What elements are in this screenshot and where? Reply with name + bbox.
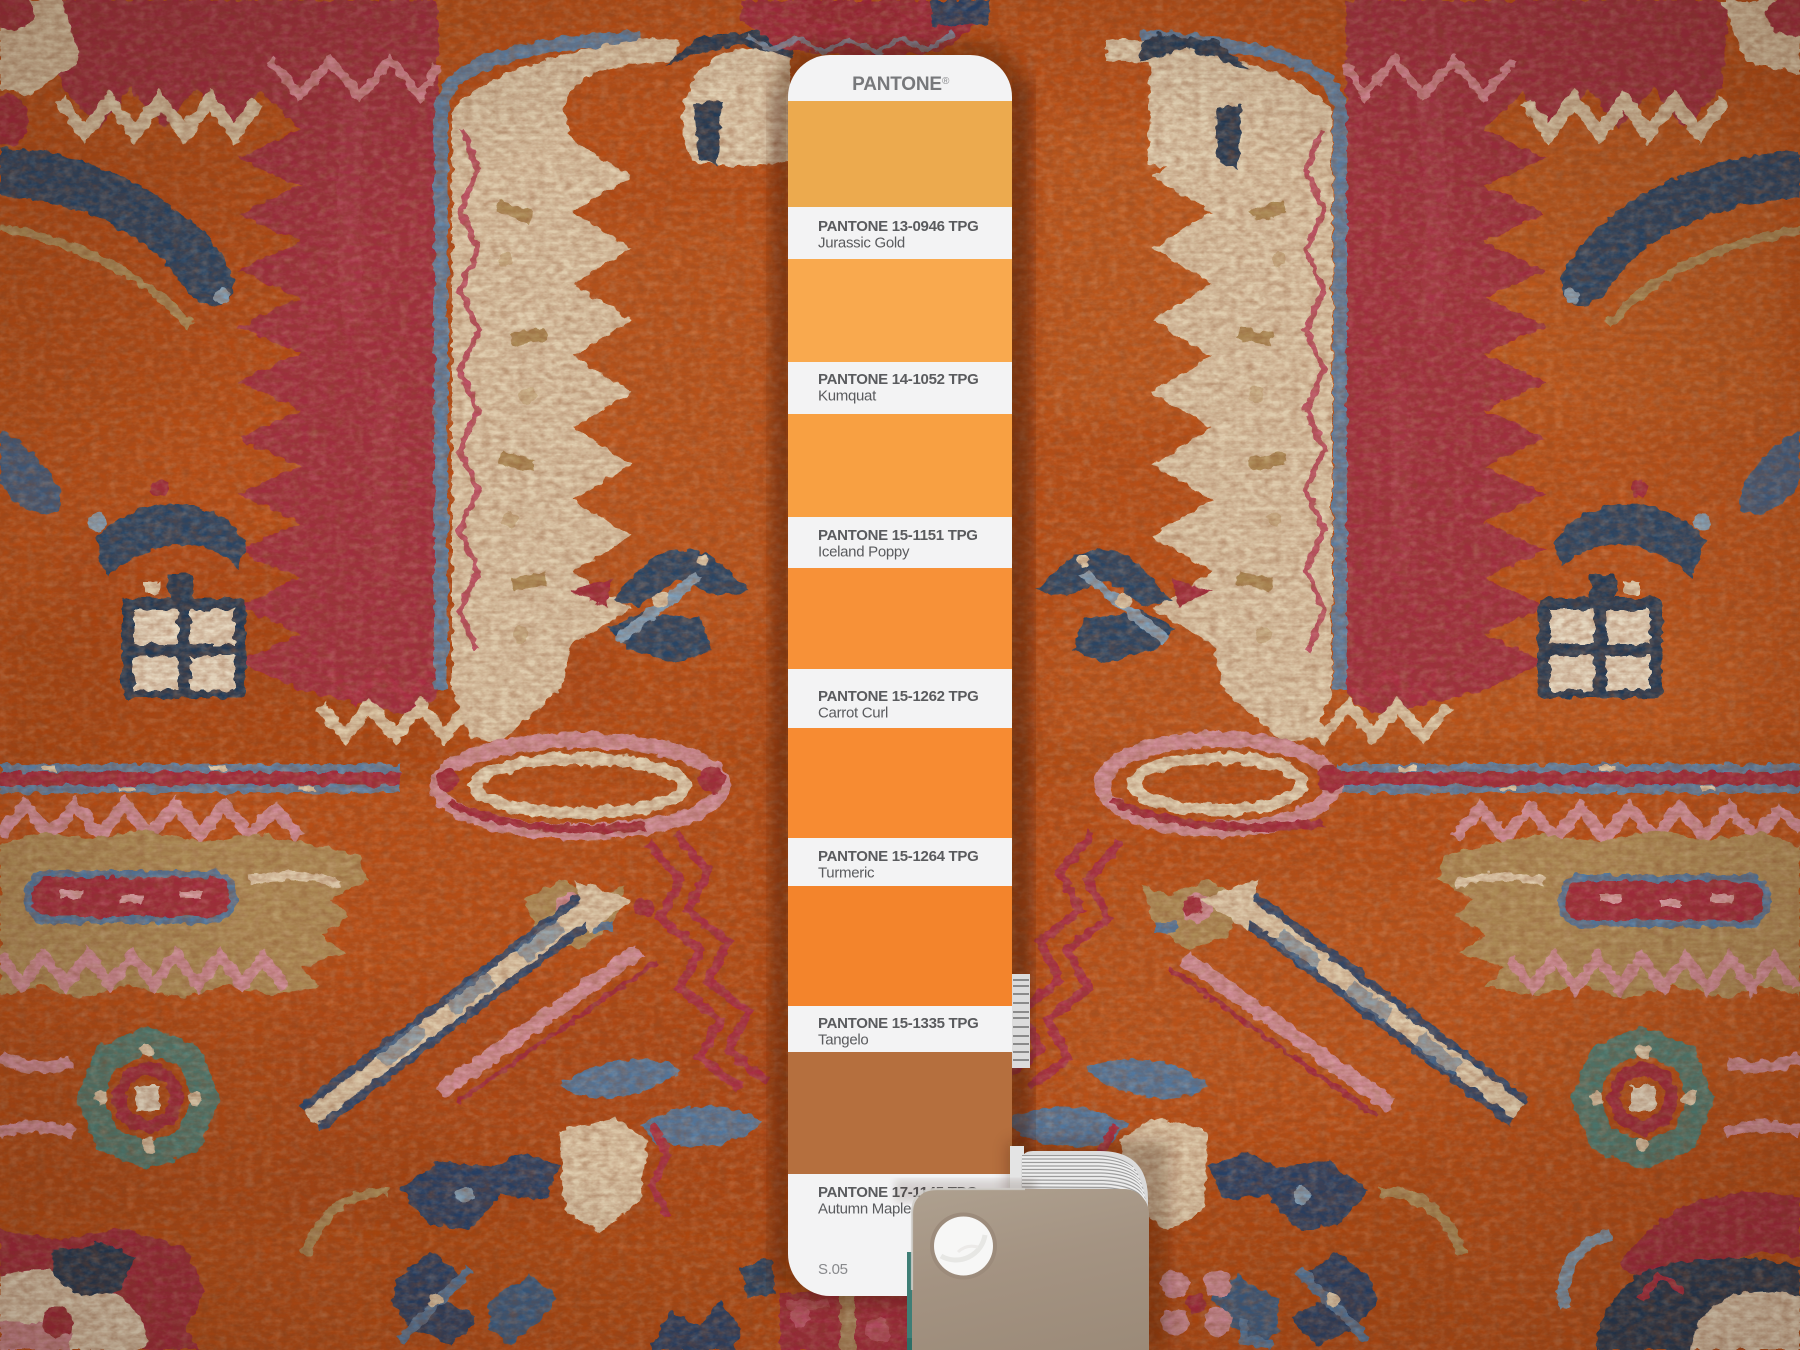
svg-text:S.05: S.05 [818,1261,848,1278]
svg-text:PANTONE 13-0946 TPG: PANTONE 13-0946 TPG [818,218,978,235]
svg-text:Carrot Curl: Carrot Curl [818,705,888,722]
svg-text:PANTONE 15-1264 TPG: PANTONE 15-1264 TPG [818,848,978,865]
svg-text:Iceland Poppy: Iceland Poppy [818,544,910,561]
svg-text:Kumquat: Kumquat [818,388,877,405]
svg-text:Autumn Maple: Autumn Maple [818,1201,911,1218]
svg-text:Turmeric: Turmeric [818,865,875,882]
svg-text:Jurassic Gold: Jurassic Gold [818,235,905,252]
svg-text:PANTONE 15-1151 TPG: PANTONE 15-1151 TPG [818,527,978,544]
svg-text:PANTONE 15-1335 TPG: PANTONE 15-1335 TPG [818,1015,978,1032]
svg-text:PANTONE 15-1262 TPG: PANTONE 15-1262 TPG [818,688,978,705]
svg-text:PANTONE: PANTONE [852,74,942,95]
svg-text:Tangelo: Tangelo [818,1032,868,1049]
svg-text:PANTONE 14-1052 TPG: PANTONE 14-1052 TPG [818,371,978,388]
svg-text:®: ® [942,76,950,87]
